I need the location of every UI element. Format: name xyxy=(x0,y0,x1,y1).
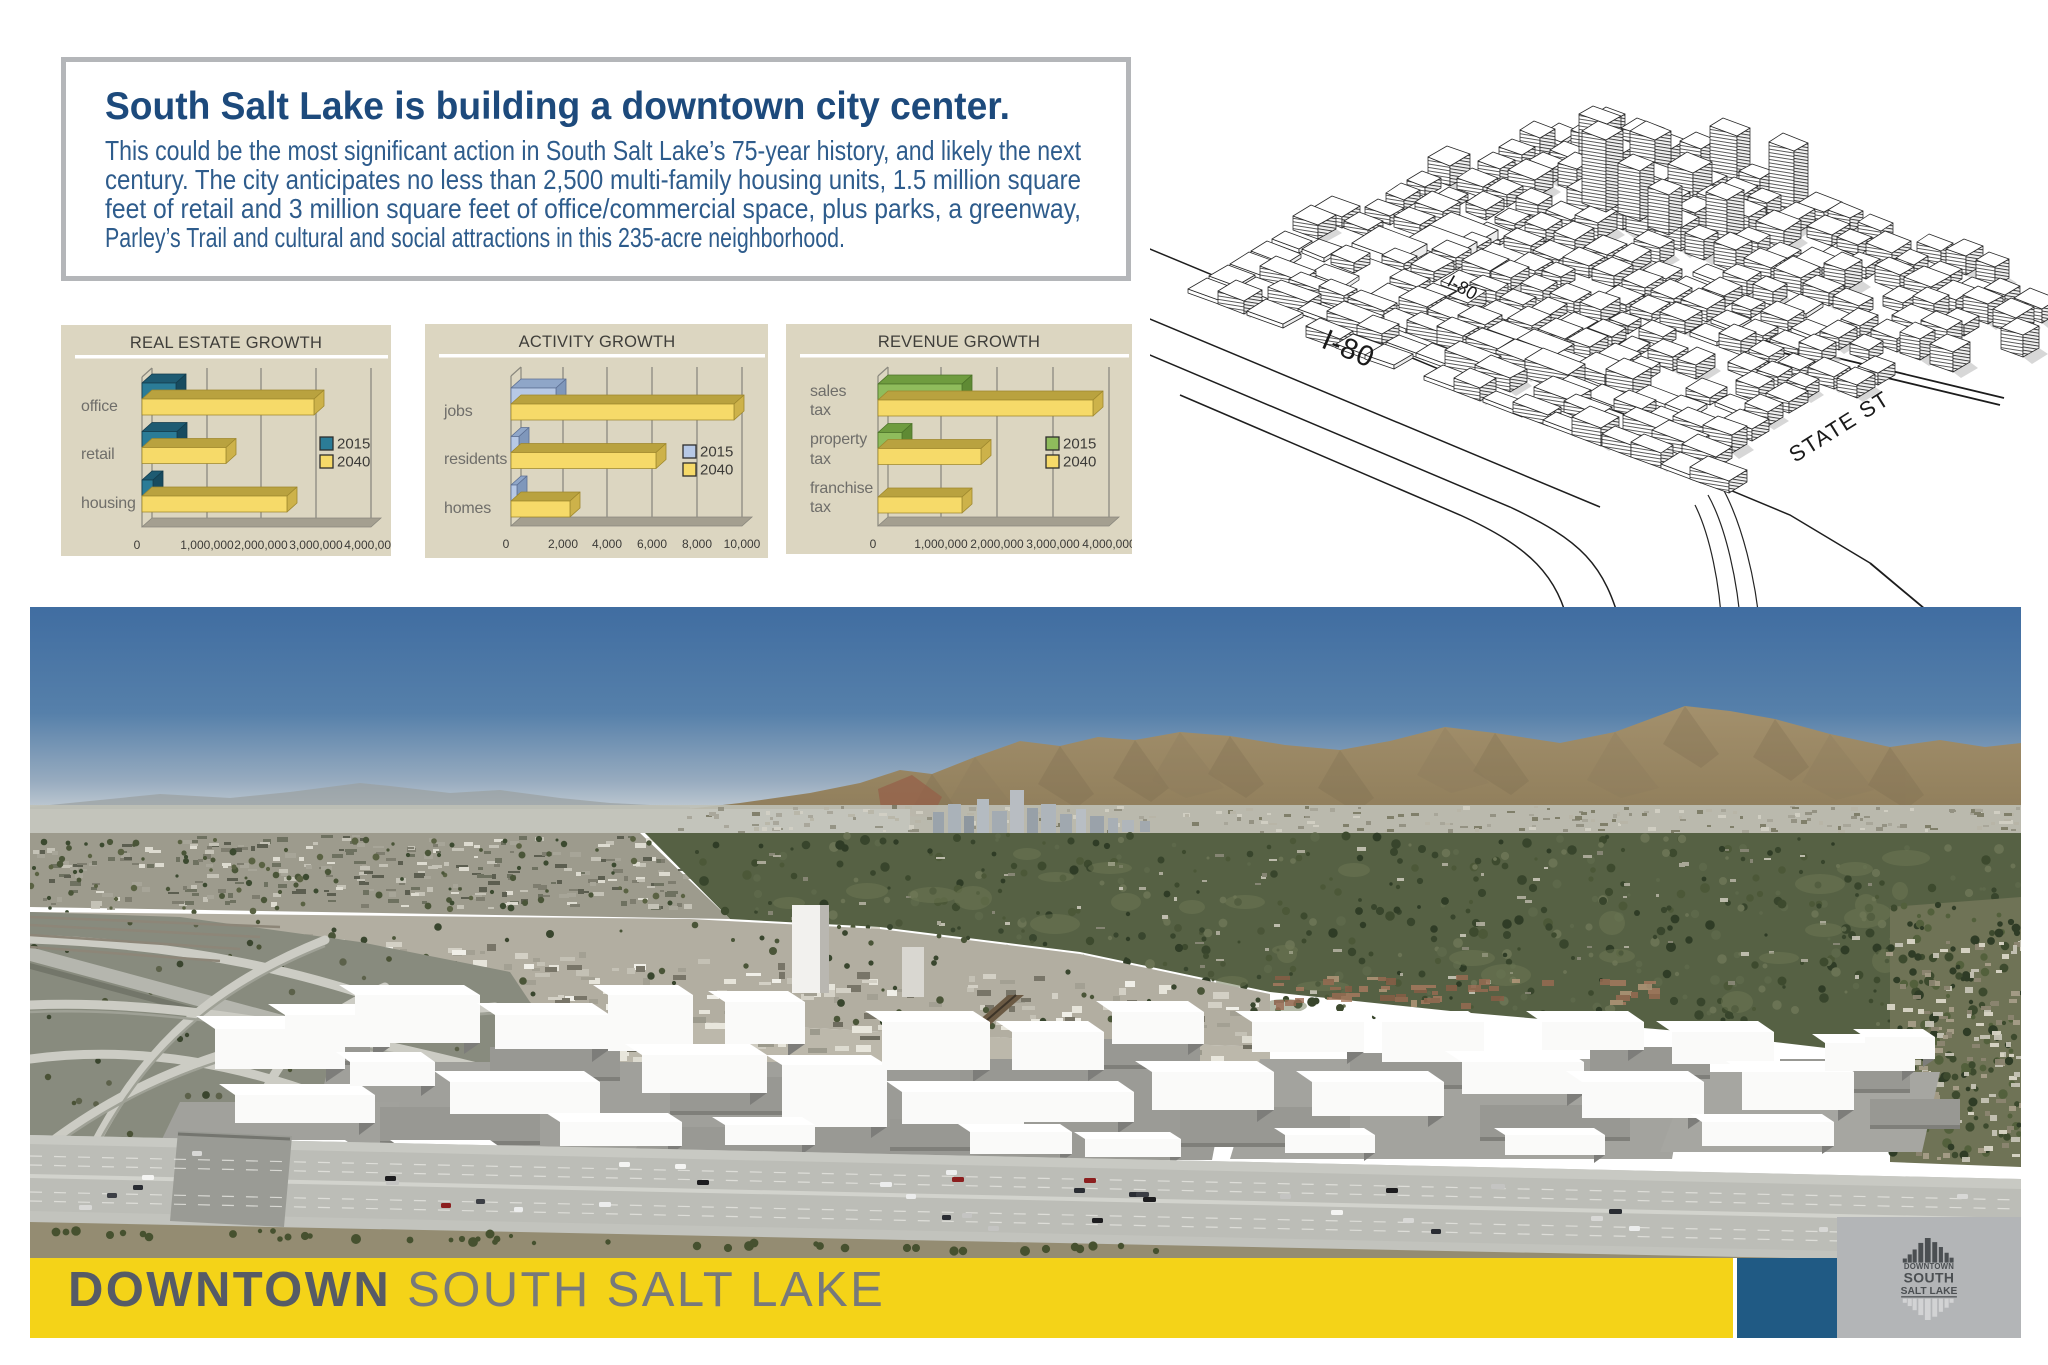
svg-text:tax: tax xyxy=(810,402,831,419)
svg-text:feet of retail and 3 million s: feet of retail and 3 million square feet… xyxy=(105,193,1081,224)
svg-text:3,000,000: 3,000,000 xyxy=(289,538,343,552)
svg-text:2040: 2040 xyxy=(700,462,733,479)
svg-text:0: 0 xyxy=(503,537,510,551)
svg-text:South Salt Lake is building a: South Salt Lake is building a downtown c… xyxy=(105,85,1010,128)
svg-text:0: 0 xyxy=(134,538,141,552)
svg-text:3,000,000: 3,000,000 xyxy=(1026,537,1080,551)
svg-text:office: office xyxy=(81,398,118,415)
svg-text:ACTIVITY GROWTH: ACTIVITY GROWTH xyxy=(519,333,676,351)
svg-text:8,000: 8,000 xyxy=(682,537,712,551)
svg-text:jobs: jobs xyxy=(443,403,473,420)
svg-text:sales: sales xyxy=(810,383,847,400)
svg-text:2,000: 2,000 xyxy=(548,537,578,551)
svg-text:property: property xyxy=(810,431,867,448)
svg-text:housing: housing xyxy=(81,495,136,512)
svg-text:tax: tax xyxy=(810,451,831,468)
svg-text:SALT LAKE: SALT LAKE xyxy=(1901,1286,1958,1297)
svg-text:2,000,000: 2,000,000 xyxy=(970,537,1024,551)
svg-text:retail: retail xyxy=(81,446,114,463)
svg-text:REVENUE GROWTH: REVENUE GROWTH xyxy=(878,333,1040,351)
svg-text:10,000: 10,000 xyxy=(724,537,761,551)
svg-text:century. The city anticipates: century. The city anticipates no less th… xyxy=(105,164,1081,195)
svg-text:2015: 2015 xyxy=(337,436,370,453)
svg-text:SOUTH: SOUTH xyxy=(1904,1269,1955,1285)
svg-text:homes: homes xyxy=(444,500,491,517)
svg-text:This could be the most signifi: This could be the most significant actio… xyxy=(105,135,1081,166)
svg-text:franchise: franchise xyxy=(810,480,873,497)
svg-text:tax: tax xyxy=(810,499,831,516)
svg-text:REAL ESTATE GROWTH: REAL ESTATE GROWTH xyxy=(130,334,322,352)
svg-text:Parley’s Trail and cultural an: Parley’s Trail and cultural and social a… xyxy=(105,222,845,253)
svg-text:1,000,000: 1,000,000 xyxy=(180,538,234,552)
svg-text:4,000,000: 4,000,000 xyxy=(344,538,391,552)
svg-text:0: 0 xyxy=(870,537,877,551)
svg-text:6,000: 6,000 xyxy=(637,537,667,551)
svg-text:2015: 2015 xyxy=(700,444,733,461)
svg-text:2040: 2040 xyxy=(337,454,370,471)
svg-text:2,000,000: 2,000,000 xyxy=(234,538,288,552)
svg-text:4,000,000: 4,000,000 xyxy=(1082,537,1132,551)
svg-text:2015: 2015 xyxy=(1063,436,1096,453)
svg-text:residents: residents xyxy=(444,451,507,468)
svg-text:4,000: 4,000 xyxy=(592,537,622,551)
svg-text:1,000,000: 1,000,000 xyxy=(914,537,968,551)
svg-text:2040: 2040 xyxy=(1063,454,1096,471)
